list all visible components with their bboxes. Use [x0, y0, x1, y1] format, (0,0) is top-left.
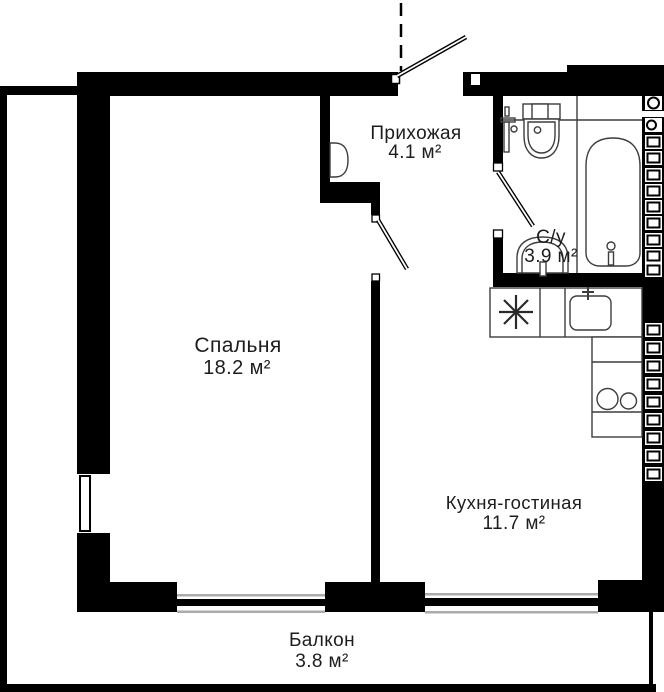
balcony-glazing-bedroom — [177, 594, 325, 613]
kitchen-fixtures — [490, 287, 642, 437]
entrance-door — [392, 3, 467, 84]
label-balcony-area: 3.8 м² — [295, 651, 348, 672]
wall-partition — [371, 281, 380, 582]
wall-hallway-horizontal — [320, 182, 380, 203]
wall-bottom-right — [598, 580, 642, 612]
label-kitchen-area: 11.7 м² — [482, 513, 545, 534]
entrance-jamb-notch — [471, 74, 480, 85]
wall-balcony-bottom — [0, 684, 656, 692]
wall-bathroom-left-upper — [493, 96, 503, 163]
kitchen-counter-right — [592, 337, 642, 437]
wall-bottom-pier — [325, 582, 425, 612]
label-balcony-name: Балкон — [289, 630, 355, 651]
label-hallway-area: 4.1 м² — [388, 142, 441, 163]
floorplan-canvas: Спальня 18.2 м² Прихожая 4.1 м² С/у 3.9 … — [0, 0, 664, 692]
bathtub — [586, 138, 640, 266]
balcony-glazing-kitchen — [425, 593, 598, 614]
bedroom-door — [372, 215, 407, 281]
wall-outer-top-left — [0, 86, 77, 95]
wall-balcony-right — [649, 612, 653, 686]
wall-right-lower — [642, 490, 664, 612]
label-bathroom-area: 3.9 м² — [524, 246, 577, 267]
wall-outer-left — [0, 86, 7, 692]
bathtub-overflow — [609, 252, 614, 265]
wall-hallway-vertical — [320, 96, 330, 182]
appliance-star — [499, 295, 533, 329]
label-kitchen-name: Кухня-гостиная — [446, 492, 582, 513]
wall-bathroom-bottom — [493, 273, 643, 287]
wall-top-right-b — [567, 65, 664, 96]
label-hallway-name: Прихожая — [370, 123, 461, 144]
label-bedroom-name: Спальня — [194, 334, 281, 357]
wall-bottom-bedroom — [77, 582, 177, 612]
vent-shaft-hatch — [642, 95, 664, 490]
bathroom-door — [494, 163, 534, 238]
bedroom-window — [80, 476, 90, 531]
label-bedroom-area: 18.2 м² — [203, 357, 271, 379]
label-bathroom-name: С/у — [536, 227, 566, 248]
wall-top — [77, 72, 398, 96]
toilet — [523, 104, 560, 158]
floorplan-svg: Спальня 18.2 м² Прихожая 4.1 м² С/у 3.9 … — [0, 0, 664, 692]
wall-bedroom-door-stub — [371, 203, 380, 215]
hallway-niche — [330, 143, 348, 177]
towel-riser — [501, 107, 517, 152]
